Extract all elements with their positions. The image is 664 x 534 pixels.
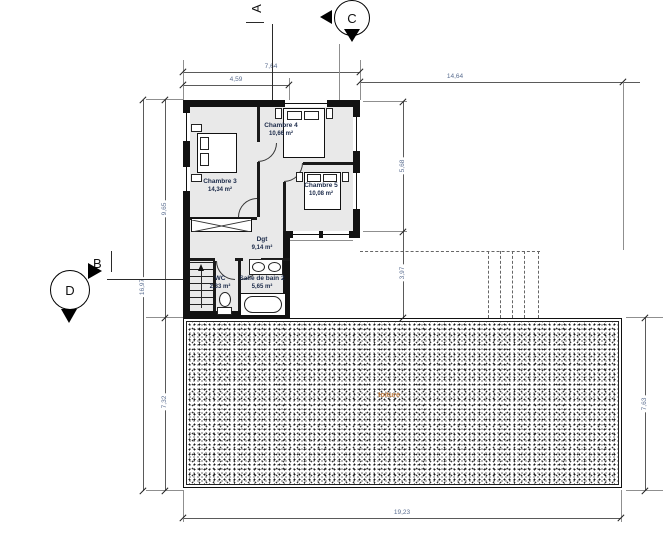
room-area: 14,34 m² [203,186,237,195]
nightstand [191,124,202,132]
stair-arrow-line [201,270,202,308]
dim-line-top-right [360,82,640,83]
dim-label-left-lower: 7,32 [162,394,169,411]
extension-line [183,60,184,100]
section-arrow-c-left [320,10,332,24]
sink [252,262,265,272]
room-name: Chambre 3 [203,177,237,186]
dim-label-top-right: 14,64 [445,74,465,81]
section-line-a-h [246,22,264,23]
pillow [200,137,209,150]
toilet-tank [217,307,232,315]
dim-line-right-inner [403,102,404,318]
room-label-wc: WC 2,33 m² [210,274,231,292]
section-line-b-v [111,251,112,272]
toilet-bowl [219,292,231,307]
section-arrow-d-right [88,263,102,279]
bathtub-basin [244,296,282,313]
dim-label-right-inner-upper: 5,68 [400,158,407,175]
section-marker-d: D [50,270,90,310]
room-area: 10,66 m² [264,130,298,139]
dim-label-bottom: 19,23 [392,510,412,517]
wardrobe [191,218,252,232]
extension-line [623,82,624,250]
stair-arrow-head [198,264,204,271]
wall-bathroom-row-1 [190,258,215,261]
window-step-right [322,231,350,238]
window-step-left [292,231,320,238]
room-label-bathroom: Salle de bain 2 5,65 m² [239,274,284,292]
dashed-stair-line [512,251,513,318]
room-label-chambre5: Chambre 5 10,08 m² [304,181,338,199]
nightstand [326,108,333,119]
window-right-chambre5 [353,172,360,210]
nightstand [275,108,282,119]
roof-label: toiture [378,392,400,399]
window-left-chambre3-upper [183,112,190,142]
room-name: Chambre 5 [304,181,338,190]
pillow [304,111,319,120]
floor-plan-canvas: Chambre 3 14,34 m² Chambre 4 10,66 m² Ch… [0,0,664,534]
window-right-chambre4 [353,116,360,152]
roof-hatch [186,321,619,485]
room-label-dgt: Dgt 9,14 m² [252,235,273,253]
nightstand [342,172,349,182]
room-label-chambre4: Chambre 4 10,66 m² [264,121,298,139]
wall-ch4-ch5 [303,162,353,165]
pillow [287,111,302,120]
room-area: 2,33 m² [210,283,231,292]
dashed-stair-line [500,251,501,318]
dim-label-right-outer: 7,63 [642,396,649,413]
dashed-stair-line [524,251,525,318]
section-marker-c-label: C [347,11,356,26]
dim-label-right-inner-lower: 3,97 [400,265,407,282]
wall-top [183,100,360,107]
dashed-stair-line [538,251,539,318]
dim-tick [139,487,146,494]
room-label-chambre3: Chambre 3 14,34 m² [203,177,237,195]
wall-ch3-corridor [257,162,260,217]
section-marker-a-label: A [250,4,263,13]
room-name: Dgt [252,235,273,244]
dim-tick [161,487,168,494]
room-name: WC [210,274,231,283]
dim-line-top-partial [183,85,289,86]
section-line-b-h [107,279,183,280]
dim-label-top-total: 7,64 [263,64,280,71]
pillow [200,153,209,166]
sink [268,262,281,272]
dashed-line-horizontal [360,251,540,252]
section-arrow-c-down [344,29,360,42]
wardrobe-cross [192,220,251,232]
room-area: 10,08 m² [304,190,338,199]
section-arrow-d-down [61,309,77,323]
wall-ch5-corridor [283,182,286,231]
room-name: Salle de bain 2 [239,274,284,283]
room-name: Chambre 4 [264,121,298,130]
nightstand [191,174,202,182]
dim-label-left-upper: 9,65 [162,201,169,218]
dim-line-bottom [183,518,621,519]
section-line-a-v [272,24,273,100]
section-line-c [339,44,340,100]
roof-terrace [183,318,622,488]
dashed-stair-line [488,251,489,318]
extension-line [289,78,290,100]
dim-label-top-partial: 4,59 [228,77,245,84]
window-left-chambre3-lower [183,166,190,192]
room-area: 5,65 m² [239,283,284,292]
section-marker-d-label: D [65,283,74,298]
dim-tick [641,487,648,494]
window-top-chambre4 [284,100,328,107]
nightstand [296,172,303,182]
room-area: 9,14 m² [252,244,273,253]
sill-line [290,240,353,241]
wall-ch3-ch4-upper [257,107,260,142]
